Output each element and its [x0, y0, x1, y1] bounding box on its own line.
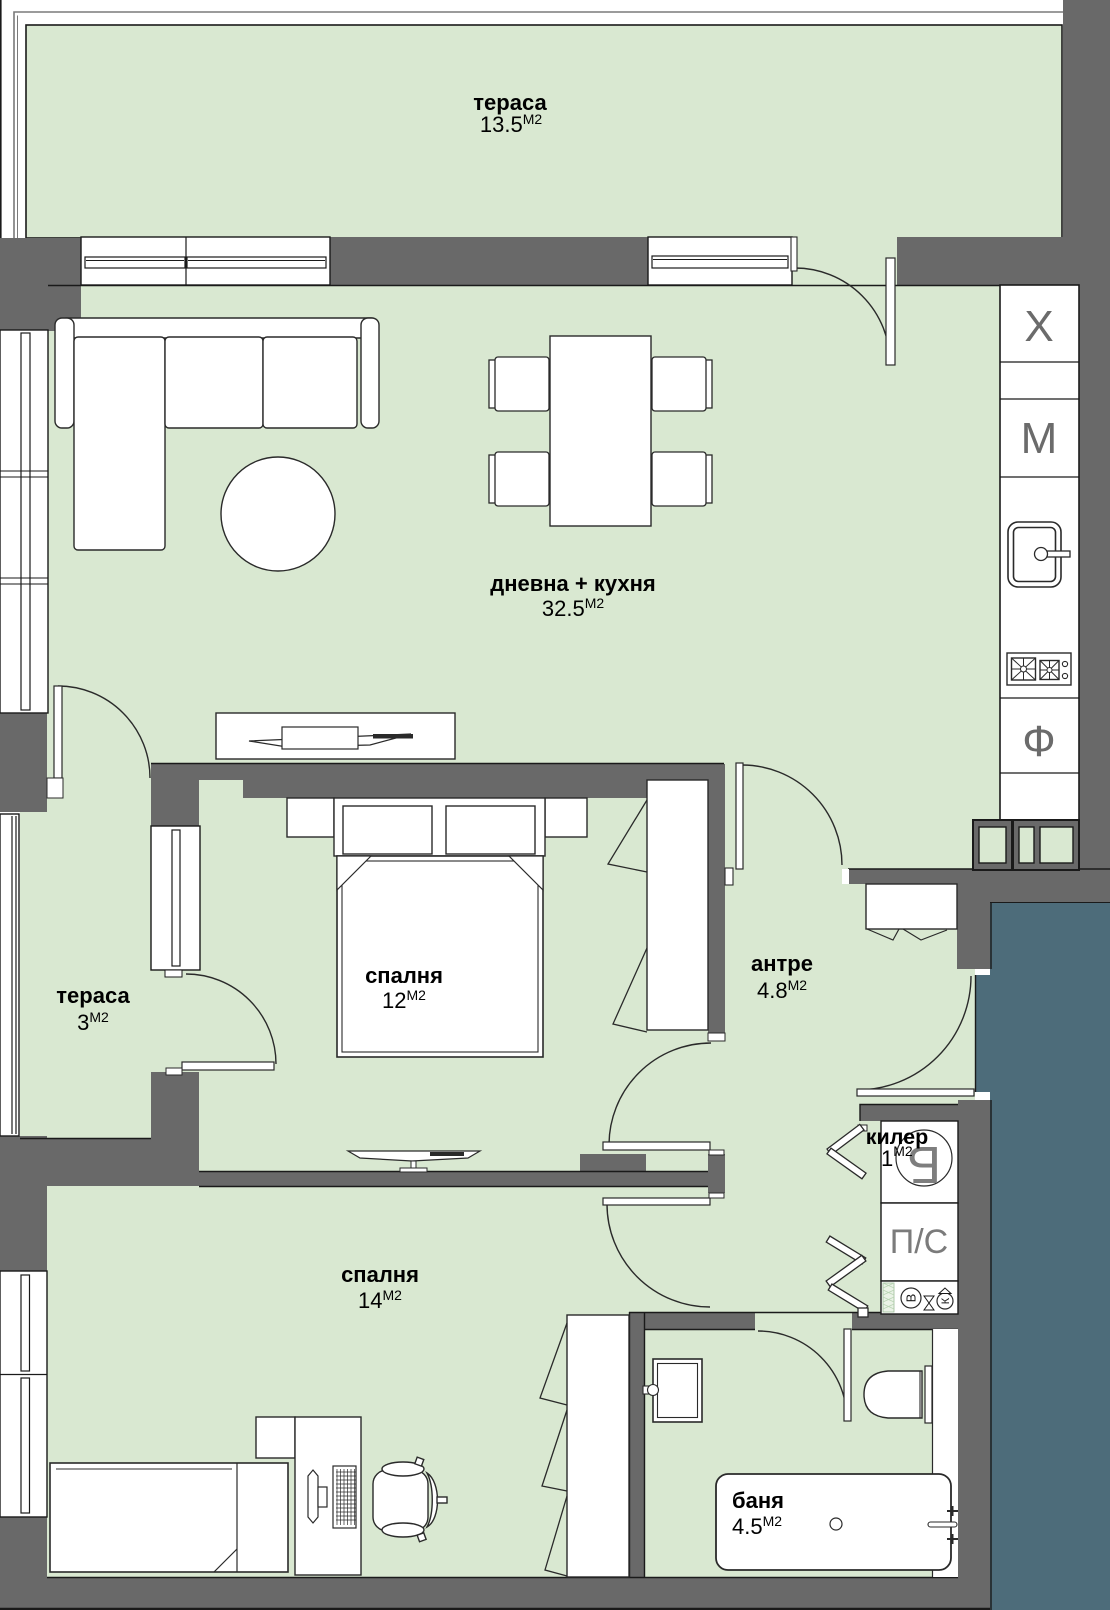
- svg-text:В: В: [904, 1294, 919, 1303]
- svg-text:X: X: [1024, 302, 1053, 351]
- svg-text:К: К: [940, 1297, 952, 1304]
- svg-text:баня: баня: [732, 1488, 784, 1513]
- svg-text:M: M: [1021, 414, 1058, 463]
- svg-text:антре: антре: [751, 951, 813, 976]
- svg-text:дневна + кухня: дневна + кухня: [490, 571, 655, 596]
- svg-text:спалня: спалня: [365, 963, 443, 988]
- svg-text:Ф: Ф: [1022, 717, 1055, 766]
- svg-text:спалня: спалня: [341, 1262, 419, 1287]
- svg-text:тераса: тераса: [56, 983, 130, 1008]
- svg-text:П/С: П/С: [890, 1223, 948, 1261]
